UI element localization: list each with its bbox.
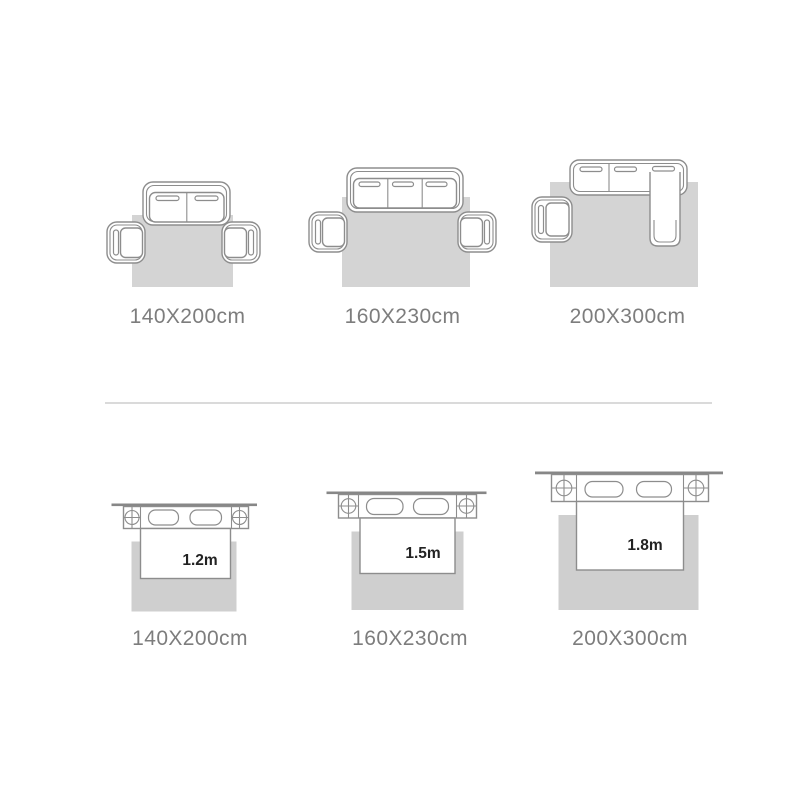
pillow-right — [190, 510, 222, 525]
sofa-diagram-200x300 — [515, 150, 740, 303]
pillow-left — [367, 499, 404, 515]
rug-size-label: 140X200cm — [90, 627, 290, 651]
sofa-size-figure-200x300: 200X300cm — [515, 150, 740, 329]
armchair-right — [458, 212, 496, 252]
wall-line — [112, 504, 258, 507]
sofa-diagram-160x230 — [295, 150, 510, 303]
rug-size-label: 140X200cm — [80, 305, 295, 329]
bed-width-label: 1.8m — [627, 537, 662, 554]
rug-size-label: 200X300cm — [530, 627, 730, 651]
rug — [132, 215, 233, 287]
pillow-right — [637, 482, 672, 498]
bed-size-figure-140x200: 1.2m 140X200cm — [90, 460, 290, 651]
bed-diagram-1.8m: 1.8m — [530, 460, 730, 625]
two-seat-sofa — [143, 182, 230, 225]
armchair-left — [532, 197, 572, 242]
bed-frame — [124, 507, 249, 529]
sofa-diagram-140x200 — [80, 150, 295, 303]
bed-diagram-1.5m: 1.5m — [310, 460, 510, 625]
bed-diagram-1.2m: 1.2m — [90, 460, 290, 625]
rug-size-label: 160X230cm — [295, 305, 510, 329]
sofa-size-figure-160x230: 160X230cm — [295, 150, 510, 329]
bed-body — [577, 502, 684, 571]
pillow-left — [585, 482, 623, 498]
bed-size-figure-160x230: 1.5m 160X230cm — [310, 460, 510, 651]
rug-size-label: 200X300cm — [515, 305, 740, 329]
bed-width-label: 1.2m — [182, 552, 217, 569]
bed-frame — [552, 475, 709, 502]
armchair-left — [107, 222, 145, 263]
armchair-left — [309, 212, 347, 252]
bed-frame — [339, 495, 477, 519]
rug-size-label: 160X230cm — [310, 627, 510, 651]
bed-width-label: 1.5m — [405, 545, 440, 562]
armchair-right — [222, 222, 260, 263]
pillow-right — [414, 499, 449, 515]
bed-size-figure-200x300: 1.8m 200X300cm — [530, 460, 730, 651]
pillow-left — [149, 510, 179, 525]
sofa-size-figure-140x200: 140X200cm — [80, 150, 295, 329]
three-seat-sofa — [347, 168, 463, 212]
rug-size-guide: 140X200cm — [0, 0, 800, 800]
wall-line — [327, 492, 487, 495]
section-divider — [105, 402, 712, 404]
